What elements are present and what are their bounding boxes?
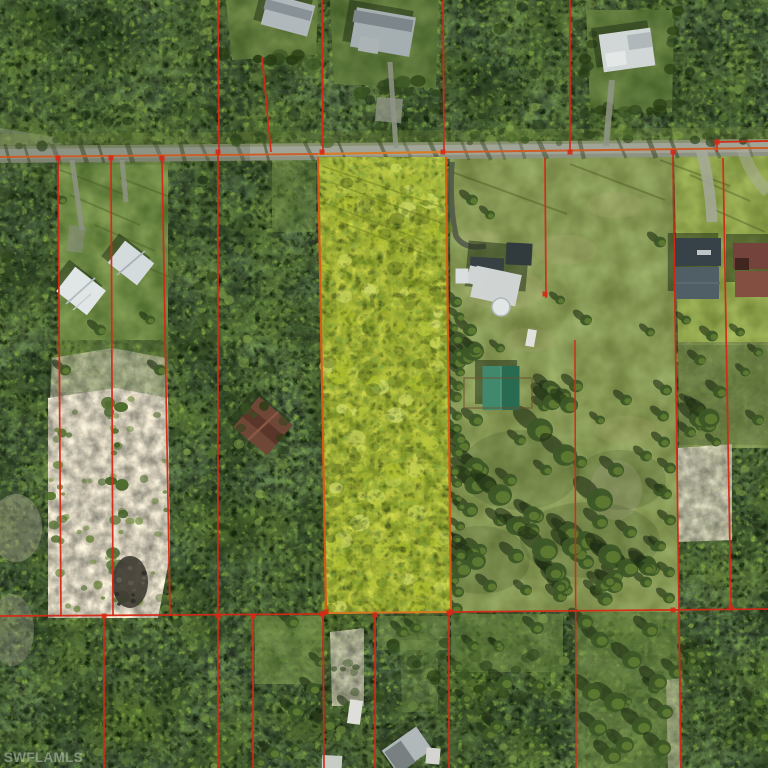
svg-text:SWFLAMLS: SWFLAMLS [4,750,83,765]
